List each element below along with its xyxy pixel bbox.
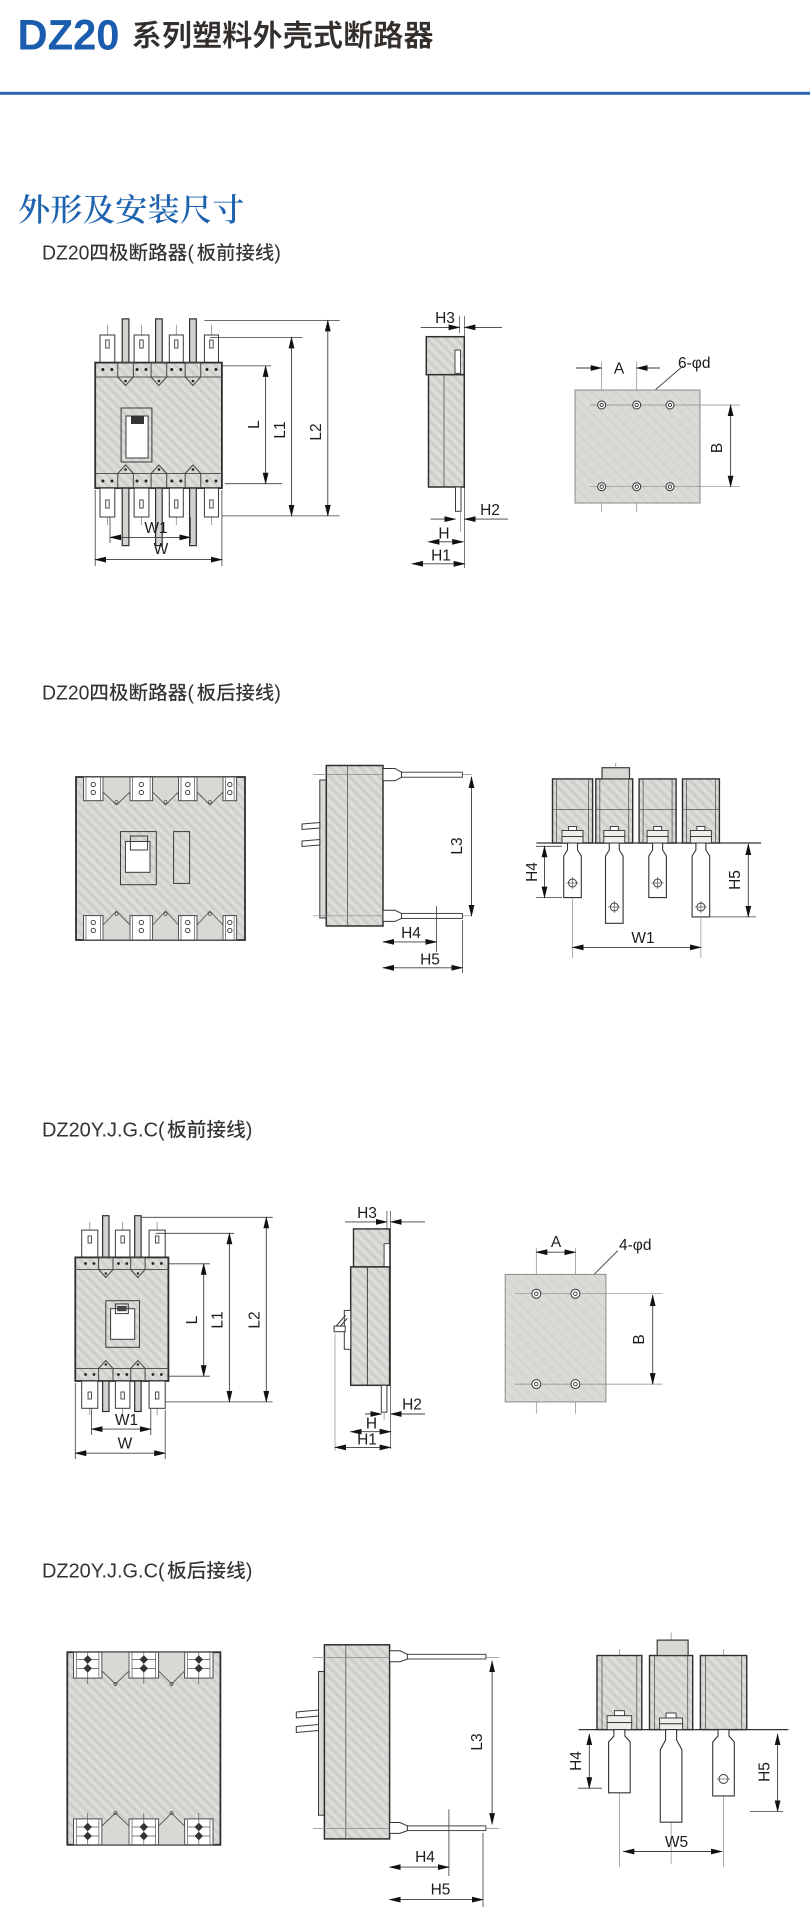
svg-text:L2: L2 xyxy=(308,423,325,440)
svg-text:(: ( xyxy=(158,1561,165,1583)
svg-text:H: H xyxy=(438,526,449,543)
svg-text:(: ( xyxy=(158,1120,165,1142)
svg-text:W1: W1 xyxy=(144,520,167,537)
svg-text:W: W xyxy=(154,541,169,558)
svg-text:): ) xyxy=(274,683,281,705)
svg-text:): ) xyxy=(246,1120,253,1142)
svg-text:H5: H5 xyxy=(727,870,744,890)
svg-text:L1: L1 xyxy=(210,1311,227,1328)
svg-text:(: ( xyxy=(187,683,194,705)
svg-text:6-φd: 6-φd xyxy=(678,355,710,372)
svg-text:L: L xyxy=(184,1315,201,1324)
svg-text:W1: W1 xyxy=(115,1412,138,1429)
svg-text:H4: H4 xyxy=(415,1849,435,1866)
svg-text:DZ20Y.J.G.C: DZ20Y.J.G.C xyxy=(42,1561,158,1583)
svg-text:H3: H3 xyxy=(357,1205,377,1222)
svg-text:H1: H1 xyxy=(357,1431,377,1448)
svg-text:): ) xyxy=(274,243,281,265)
svg-text:H5: H5 xyxy=(757,1762,774,1782)
svg-text:L1: L1 xyxy=(272,421,289,438)
svg-text:A: A xyxy=(551,1234,562,1251)
svg-text:B: B xyxy=(631,1334,648,1344)
svg-text:B: B xyxy=(709,443,726,453)
svg-text:W1: W1 xyxy=(631,930,654,947)
svg-text:H4: H4 xyxy=(401,925,421,942)
svg-text:L3: L3 xyxy=(449,837,466,854)
svg-text:L: L xyxy=(246,420,263,429)
svg-text:4-φd: 4-φd xyxy=(619,1237,651,1254)
svg-text:W5: W5 xyxy=(665,1834,688,1851)
svg-text:DZ20: DZ20 xyxy=(42,243,89,265)
svg-text:L3: L3 xyxy=(469,1733,486,1750)
svg-text:DZ20: DZ20 xyxy=(18,12,120,60)
svg-text:H4: H4 xyxy=(568,1751,585,1771)
svg-text:H4: H4 xyxy=(524,862,541,882)
svg-text:A: A xyxy=(614,361,625,378)
svg-text:H2: H2 xyxy=(402,1397,422,1414)
svg-text:L2: L2 xyxy=(247,1311,264,1328)
svg-text:H5: H5 xyxy=(431,1882,451,1899)
svg-text:DZ20Y.J.G.C: DZ20Y.J.G.C xyxy=(42,1120,158,1142)
svg-text:H3: H3 xyxy=(435,310,455,327)
svg-text:W: W xyxy=(118,1436,133,1453)
svg-text:): ) xyxy=(246,1561,253,1583)
svg-text:H: H xyxy=(366,1416,377,1433)
svg-text:DZ20: DZ20 xyxy=(42,683,89,705)
svg-text:(: ( xyxy=(187,243,194,265)
svg-text:H5: H5 xyxy=(420,952,440,969)
svg-text:H2: H2 xyxy=(480,502,500,519)
svg-text:H1: H1 xyxy=(431,548,451,565)
